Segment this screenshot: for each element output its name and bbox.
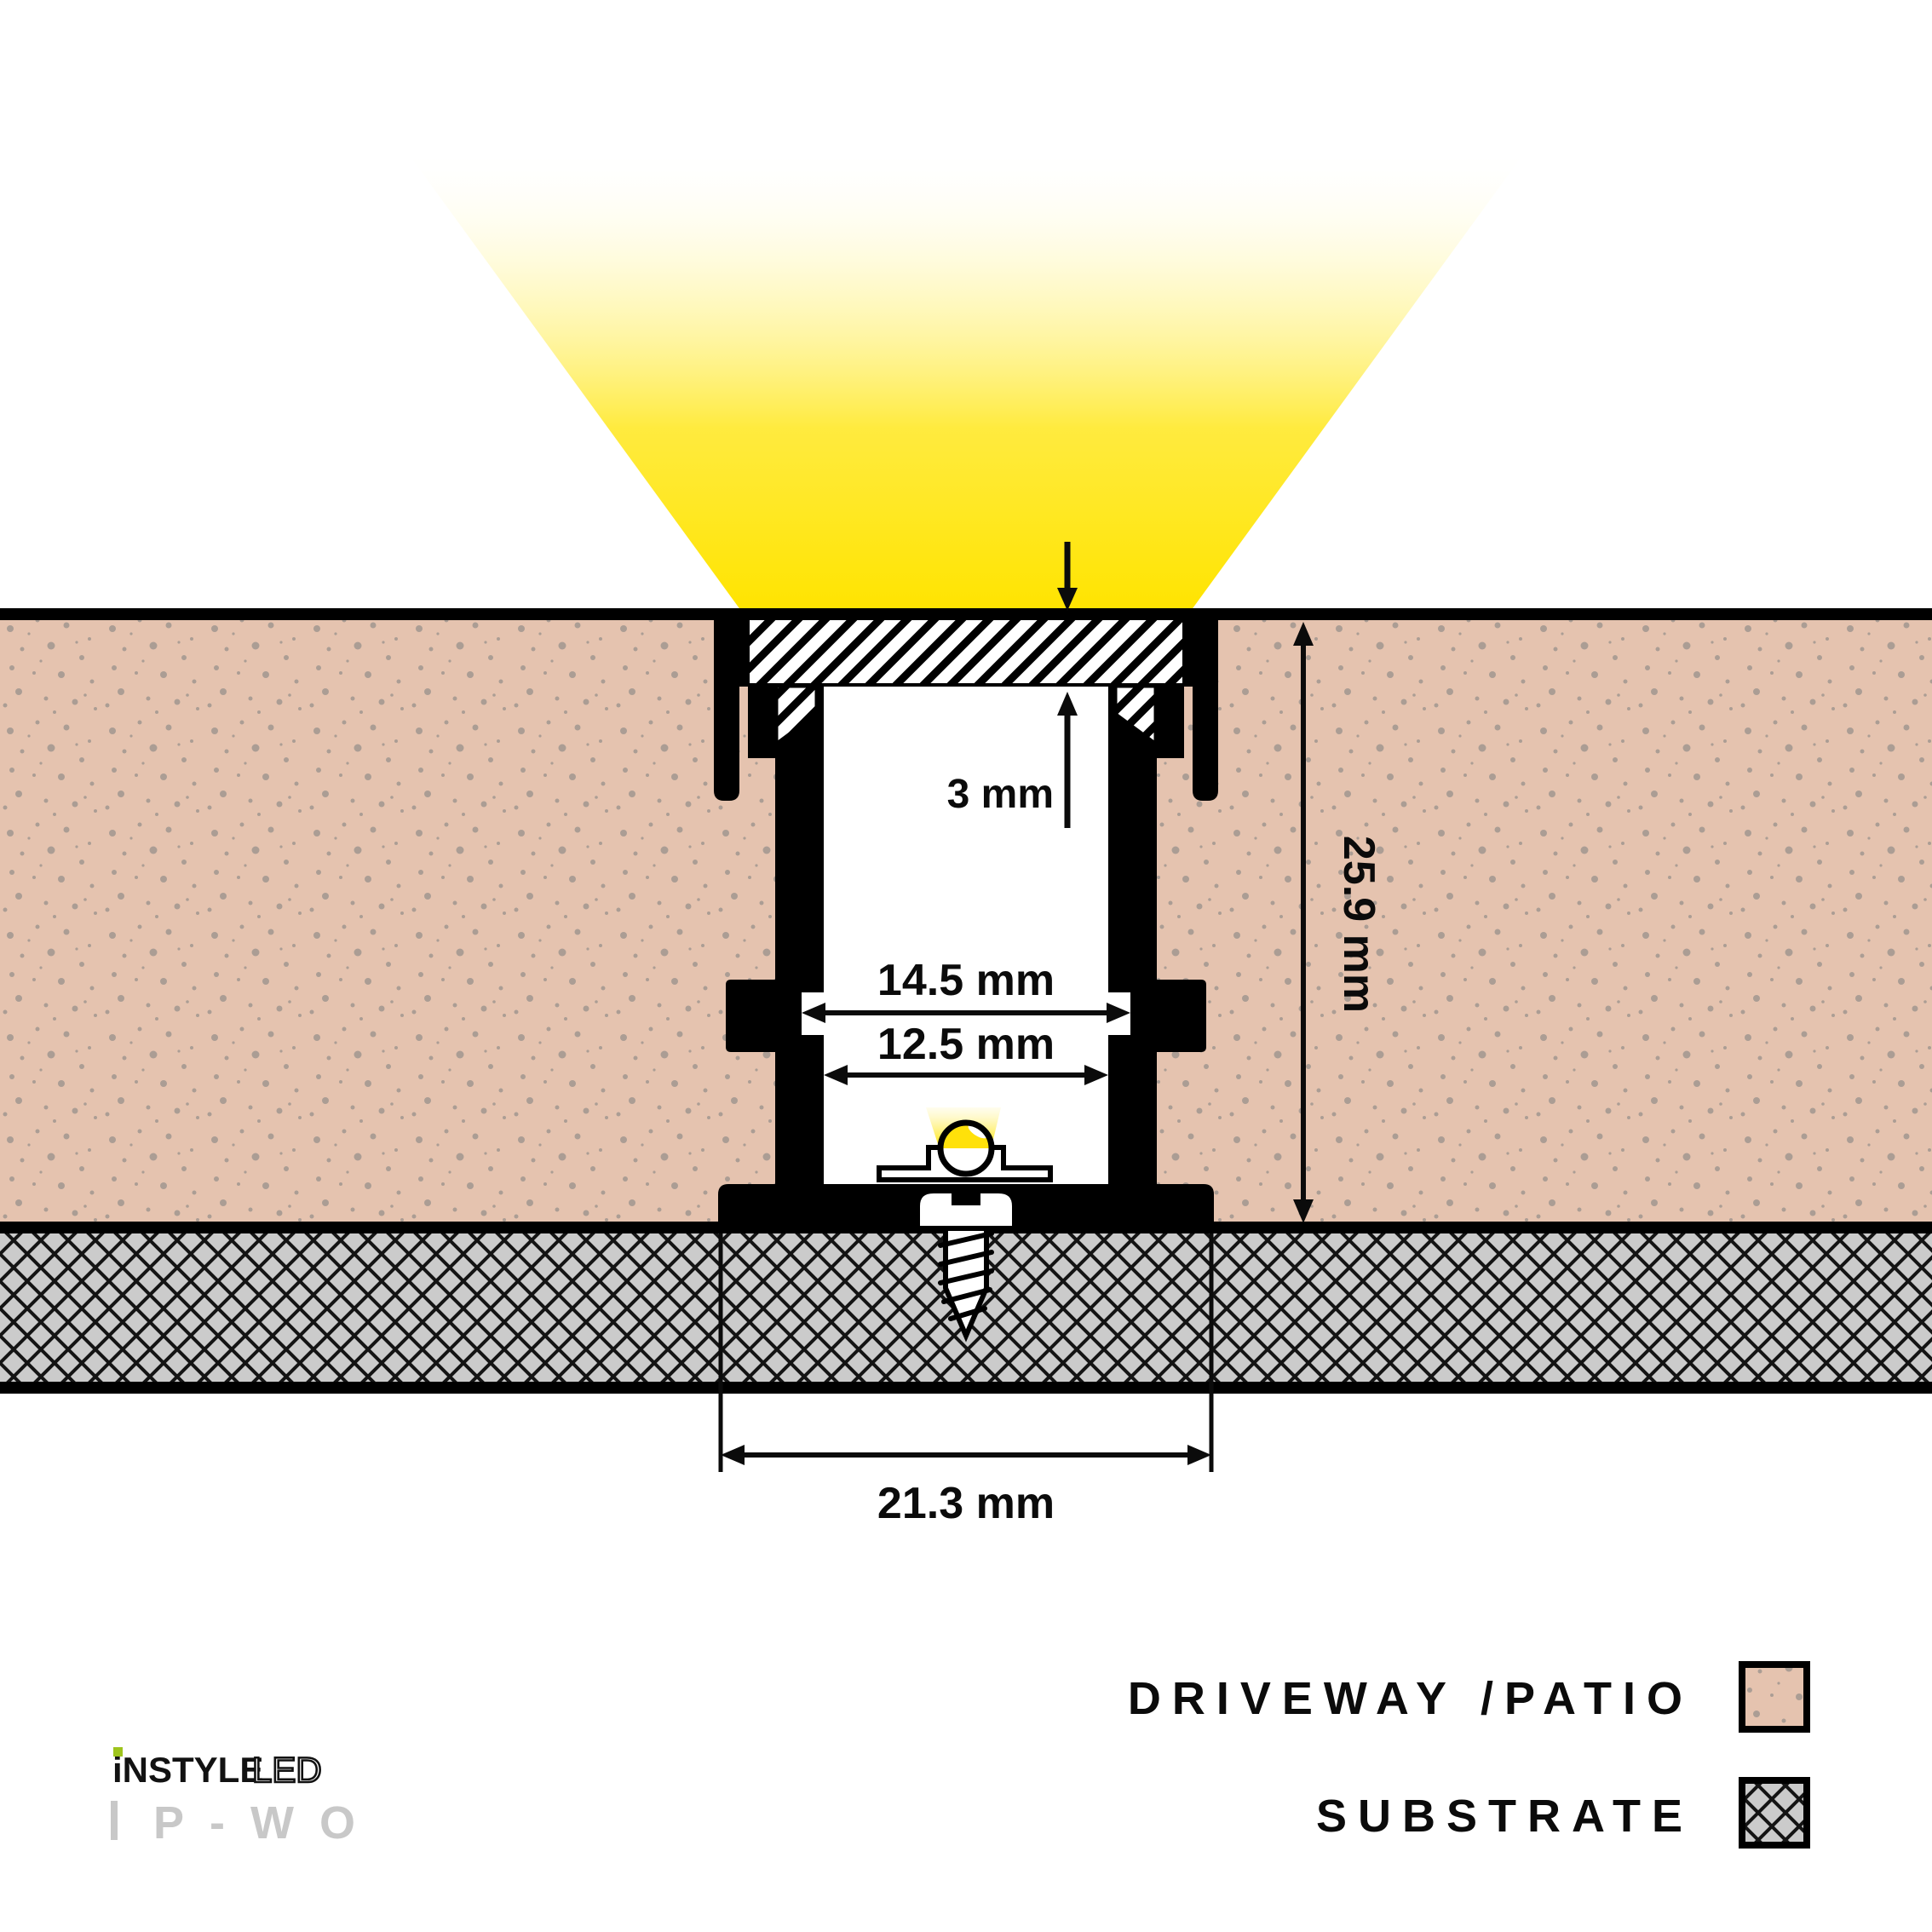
product-code: P-WO xyxy=(153,1797,381,1849)
legend-label-driveway: DRIVEWAY /PATIO xyxy=(1128,1673,1693,1724)
dim-label-inner-upper: 14.5 mm xyxy=(877,956,1055,1005)
brand-suffix: LED xyxy=(252,1750,322,1790)
legend-swatch-substrate xyxy=(1742,1780,1807,1845)
brand-i-dot xyxy=(113,1747,123,1757)
model-divider-bar xyxy=(111,1801,118,1840)
dim-label-base-width: 21.3 mm xyxy=(877,1479,1055,1528)
installation-diagram: 3 mm 14.5 mm 12.5 mm 25.9 mm 21.3 mm DRI… xyxy=(0,0,1932,1932)
dim-label-recess: 3 mm xyxy=(947,772,1054,817)
profile-cavity xyxy=(802,618,1130,1184)
brand-name: iNSTYLE xyxy=(112,1750,263,1790)
legend-swatch-driveway xyxy=(1742,1665,1807,1729)
diffuser-lid xyxy=(748,618,1184,685)
dim-label-inner-lower: 12.5 mm xyxy=(877,1020,1055,1069)
diagram-page: 3 mm 14.5 mm 12.5 mm 25.9 mm 21.3 mm DRI… xyxy=(0,0,1932,1932)
substrate-bottom-line xyxy=(0,1382,1932,1394)
dim-label-height: 25.9 mm xyxy=(1334,836,1383,1013)
legend-label-substrate: SUBSTRATE xyxy=(1316,1791,1693,1842)
